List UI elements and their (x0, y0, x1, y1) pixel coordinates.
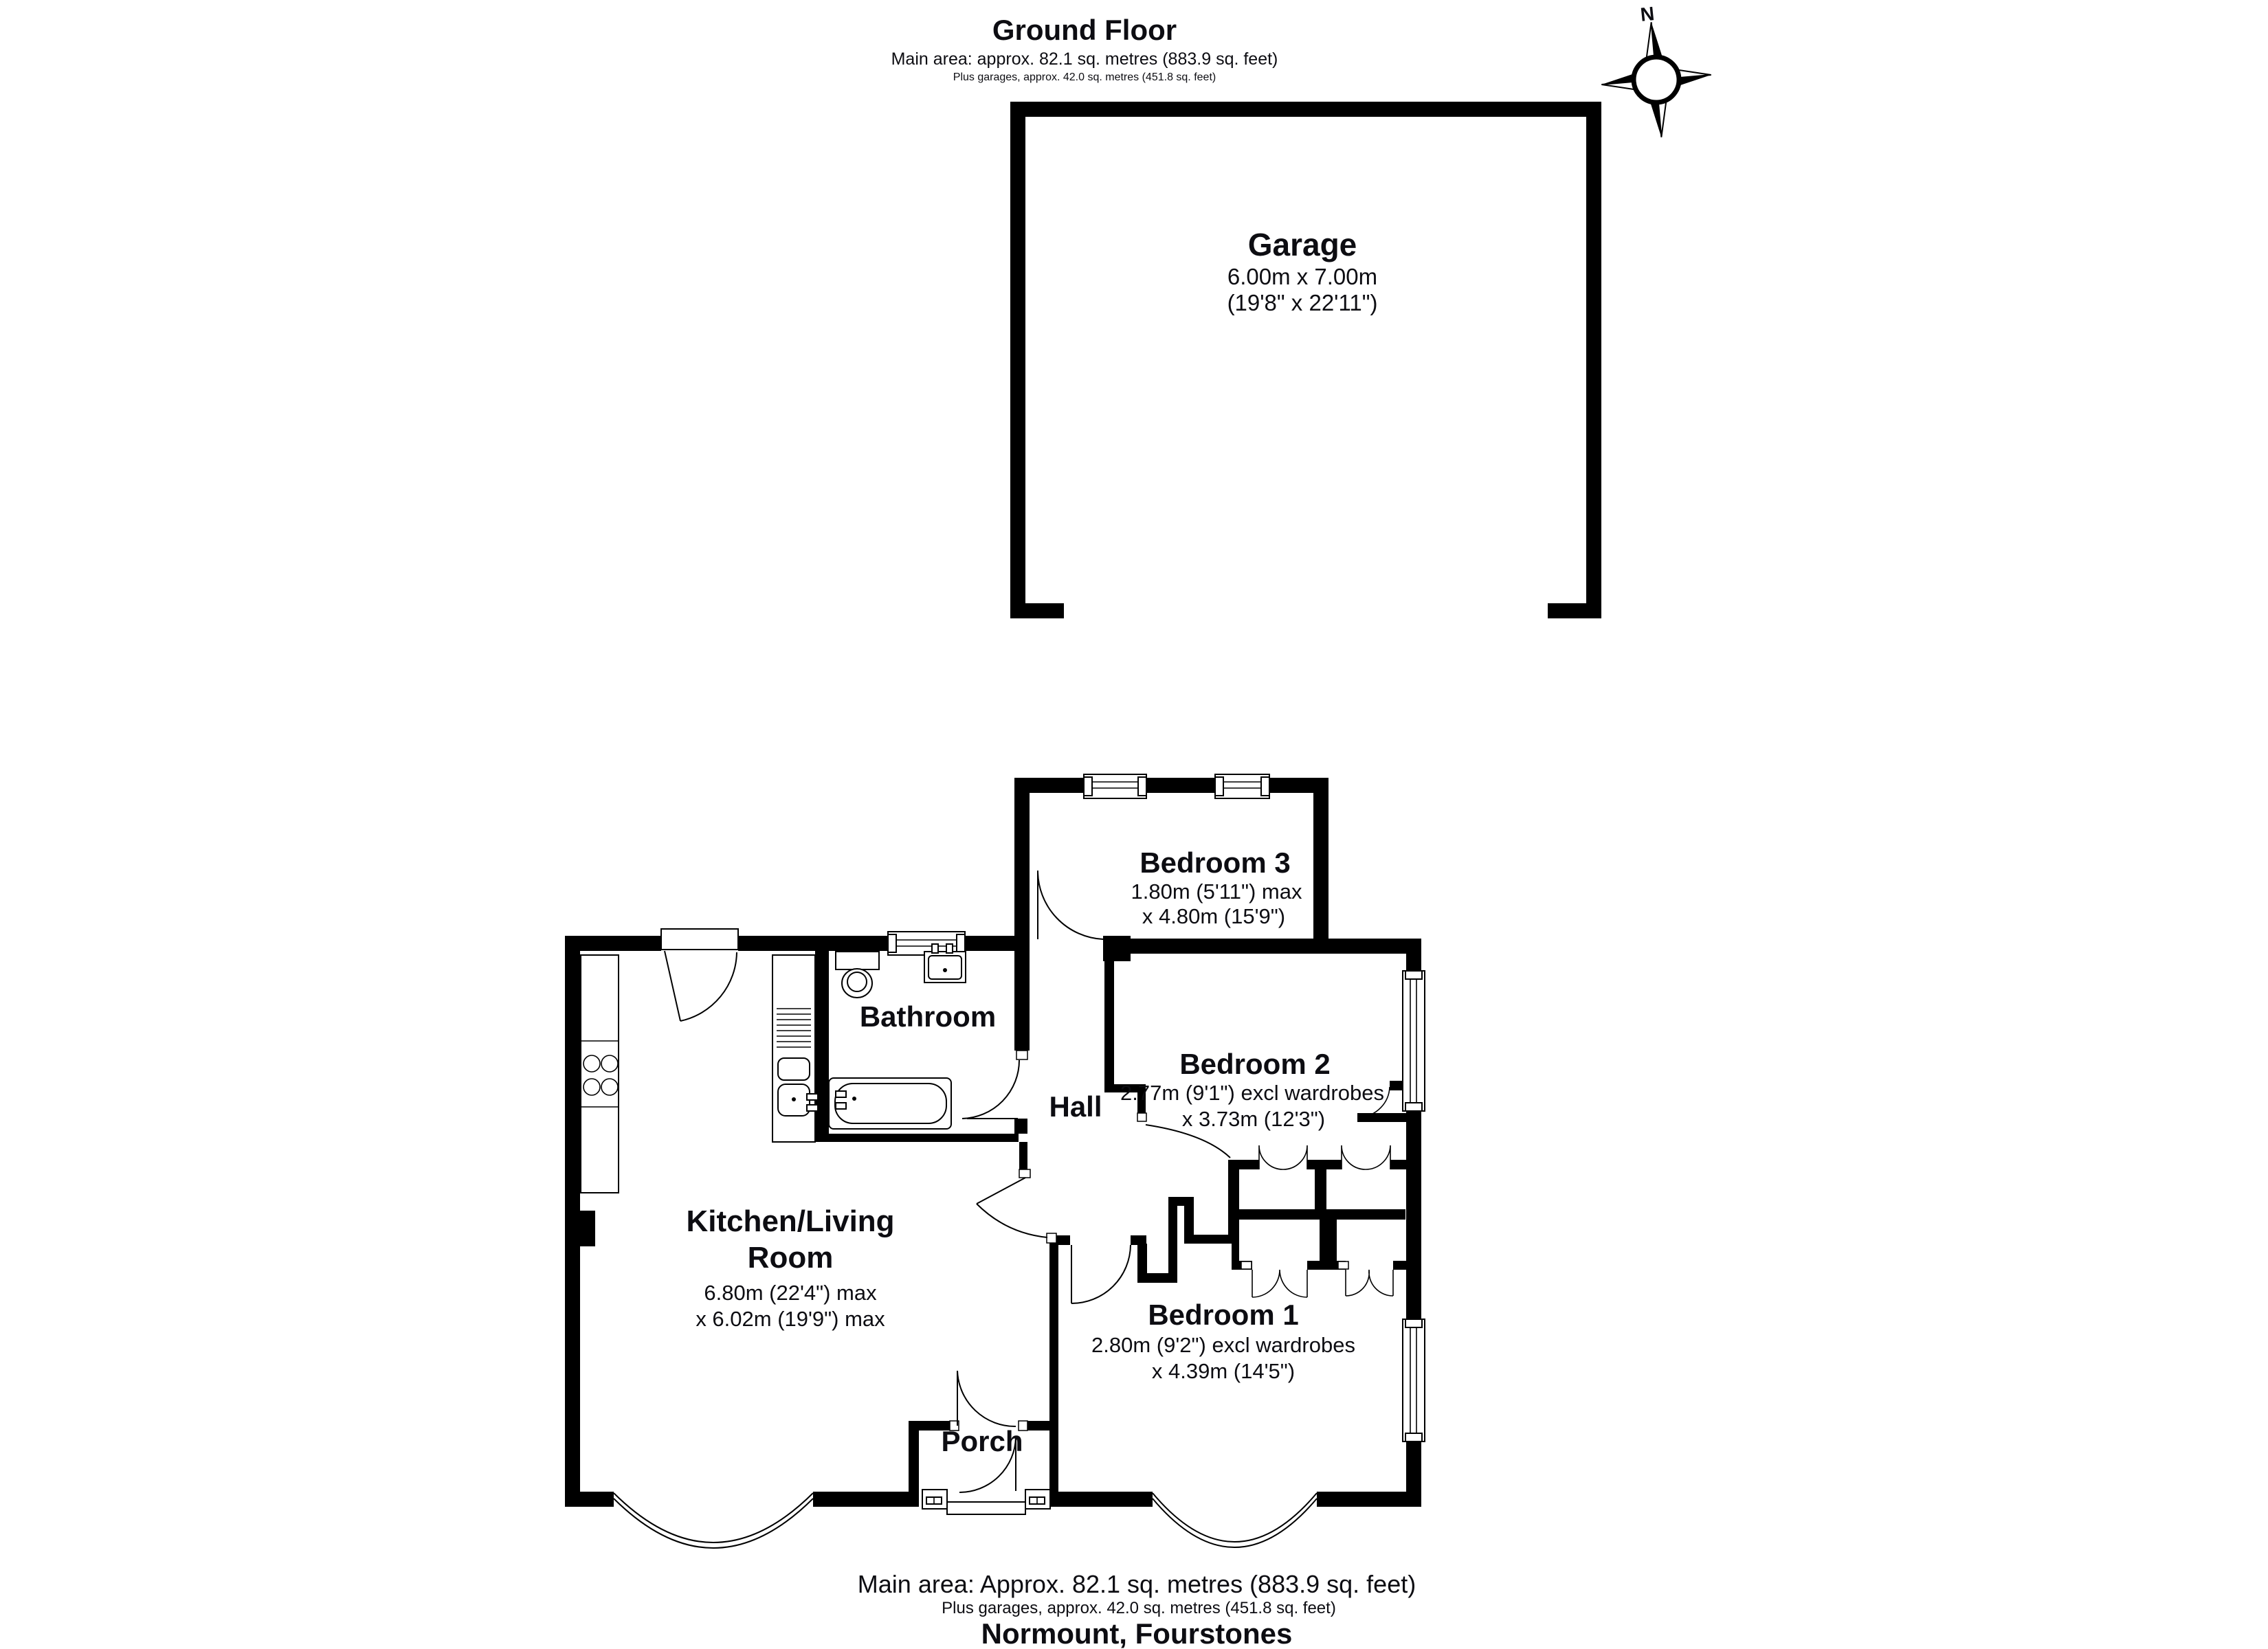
garage-wall-stub-left (1010, 603, 1064, 618)
wall-nook (1184, 1197, 1194, 1244)
door-kitchen-entrance (661, 929, 738, 1021)
svg-text:Bedroom 2: Bedroom 2 (1179, 1048, 1330, 1080)
wall-bed3-west (1014, 778, 1030, 954)
label-bedroom2: Bedroom 2 2.77m (9'1") excl wardrobes x … (1120, 1048, 1384, 1131)
garage-wall-top (1010, 102, 1601, 117)
door-bedroom1 (1071, 1245, 1131, 1303)
garage-wall-right (1586, 102, 1601, 618)
garage-label: Garage (1248, 227, 1357, 262)
wall-bed3-top (1014, 778, 1084, 793)
floorplan-canvas: Ground Floor Main area: approx. 82.1 sq.… (0, 0, 2268, 1649)
wall-wardrobe-div (1320, 1220, 1337, 1261)
svg-text:Porch: Porch (941, 1425, 1023, 1457)
label-porch: Porch (941, 1425, 1023, 1457)
hinge-block (1137, 1113, 1146, 1121)
header-area-text: Main area: approx. 82.1 sq. metres (883.… (891, 49, 1278, 69)
hinge-block (1047, 1233, 1056, 1243)
wall-bed3-east (1313, 778, 1328, 943)
wall-wardrobe (1390, 1160, 1406, 1169)
door-bathroom (962, 1060, 1019, 1119)
kitchen-sink-unit (772, 955, 818, 1142)
hinge-block (1241, 1261, 1252, 1269)
svg-text:Hall: Hall (1049, 1090, 1102, 1123)
svg-text:1.80m (5'11") max: 1.80m (5'11") max (1131, 879, 1302, 904)
wall-porch-top (1027, 1421, 1053, 1431)
wall-nook (1168, 1197, 1177, 1283)
footer: Main area: Approx. 82.1 sq. metres (883.… (858, 1570, 1416, 1649)
wall-bathroom-west (815, 951, 829, 1142)
wall-nook (1147, 1273, 1177, 1283)
property-name: Normount, Fourstones (981, 1617, 1293, 1649)
door-porch-inner (957, 1371, 1016, 1426)
wall-wardrobe-div (1315, 1169, 1326, 1209)
footer-garage-area-text: Plus garages, approx. 42.0 sq. metres (4… (942, 1599, 1336, 1617)
header-garage-area-text: Plus garages, approx. 42.0 sq. metres (4… (953, 71, 1216, 83)
sink-bowl (778, 1058, 810, 1080)
wall-south (1053, 1492, 1153, 1507)
svg-text:2.80m (9'2") excl wardrobes: 2.80m (9'2") excl wardrobes (1091, 1333, 1355, 1357)
garage-block: Garage 6.00m x 7.00m (19'8" x 22'11") (1010, 102, 1601, 618)
wall-porch-west (909, 1421, 919, 1507)
chimney-pier (565, 1211, 595, 1246)
bow-window-kitchen (614, 1493, 813, 1548)
garage-dim-metric: 6.00m x 7.00m (1227, 264, 1377, 289)
kitchen-counter (581, 955, 619, 1193)
hinge-block (1019, 1169, 1030, 1178)
svg-text:Kitchen/Living: Kitchen/Living (686, 1204, 894, 1238)
wall-hall-west (1014, 951, 1030, 1051)
window-bedroom3-left (1084, 774, 1146, 798)
window-bedroom2 (1403, 971, 1425, 1111)
wall (738, 936, 888, 951)
wall-bed3-top (1146, 778, 1215, 793)
wall-hall-west (1019, 1142, 1027, 1169)
toilet (836, 952, 879, 998)
wall-hall-west (1014, 1119, 1027, 1134)
svg-text:x 4.39m (14'5"): x 4.39m (14'5") (1152, 1359, 1295, 1383)
page-title: Ground Floor (992, 14, 1177, 46)
svg-text:Bathroom: Bathroom (860, 1000, 996, 1033)
svg-text:Room: Room (748, 1241, 834, 1275)
window-bedroom1 (1403, 1319, 1425, 1442)
wall-nook (1137, 1244, 1147, 1283)
compass-rose-icon: N (1597, 3, 1716, 142)
drain-dot (852, 1097, 856, 1101)
wall-east (1406, 939, 1421, 971)
wall-nook (1194, 1235, 1228, 1244)
label-kitchen-living: Kitchen/Living Room 6.80m (22'4") max x … (686, 1204, 894, 1331)
header: Ground Floor Main area: approx. 82.1 sq.… (891, 14, 1278, 83)
hinge-block (1016, 1051, 1027, 1059)
door-bedroom3 (1038, 871, 1103, 939)
tap (807, 1094, 818, 1100)
tap (836, 1103, 846, 1109)
label-bathroom: Bathroom (860, 1000, 996, 1033)
svg-text:x 6.02m (19'9") max: x 6.02m (19'9") max (696, 1307, 885, 1331)
svg-text:x 4.80m (15'9"): x 4.80m (15'9") (1142, 904, 1285, 928)
svg-text:6.80m (22'4") max: 6.80m (22'4") max (704, 1281, 877, 1305)
garage-dim-imperial: (19'8" x 22'11") (1227, 290, 1378, 315)
bow-window-bedroom1 (1153, 1493, 1317, 1547)
wall-bed1-north (1131, 1235, 1146, 1245)
wall-wardrobe-mid (1232, 1209, 1405, 1220)
svg-text:Bedroom 3: Bedroom 3 (1139, 846, 1290, 879)
tap (946, 944, 953, 953)
compass-north-label: N (1639, 3, 1655, 25)
compass-circle (1632, 55, 1681, 104)
garage-wall-left (1010, 102, 1025, 618)
wall-wardrobe-west (1232, 1160, 1239, 1270)
hinge-block (1338, 1261, 1348, 1269)
svg-text:x 3.73m (12'3"): x 3.73m (12'3") (1182, 1107, 1325, 1131)
wall-south (565, 1492, 614, 1507)
bathtub (829, 1078, 951, 1129)
svg-text:2.77m (9'1") excl wardrobes: 2.77m (9'1") excl wardrobes (1120, 1081, 1384, 1105)
porch-door-jambs (922, 1490, 1050, 1514)
wall-south (1317, 1492, 1421, 1507)
footer-area-text: Main area: Approx. 82.1 sq. metres (883.… (858, 1570, 1416, 1598)
door-kitchen-living (977, 1178, 1047, 1237)
tap (836, 1091, 846, 1097)
wall-wardrobe (1393, 1261, 1406, 1270)
drain-dot (792, 1097, 796, 1101)
door-threshold (947, 1502, 1025, 1514)
wall-hall-bed2 (1104, 954, 1114, 1084)
wall-bed1-west (1049, 1242, 1058, 1507)
label-hall: Hall (1049, 1090, 1102, 1123)
wardrobe-bifold-doors-bedroom1 (1252, 1270, 1393, 1297)
tap (807, 1105, 818, 1111)
wall-bathroom-south (815, 1134, 1019, 1142)
wall-south (813, 1492, 919, 1507)
label-bedroom3: Bedroom 3 1.80m (5'11") max x 4.80m (15'… (1131, 846, 1302, 928)
svg-text:Bedroom 1: Bedroom 1 (1148, 1299, 1298, 1331)
wall-bed2-top (1103, 939, 1421, 954)
garage-wall-stub-right (1548, 603, 1601, 618)
wall-east (1406, 1111, 1421, 1319)
drain-dot (943, 968, 947, 972)
wall (965, 936, 1016, 951)
window-bedroom3-right (1215, 774, 1269, 798)
wall-wardrobe (1307, 1160, 1342, 1169)
wall-cupboard-stub (1357, 1113, 1406, 1122)
label-bedroom1: Bedroom 1 2.80m (9'2") excl wardrobes x … (1091, 1299, 1355, 1383)
tap (932, 944, 938, 953)
